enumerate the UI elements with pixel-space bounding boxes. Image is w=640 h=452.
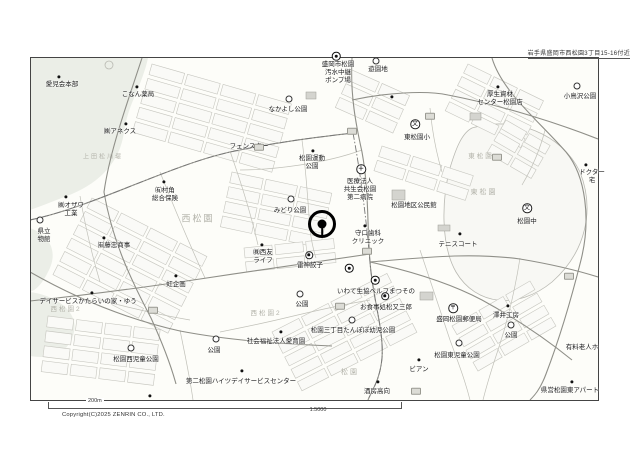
road-marker-pill (362, 248, 372, 255)
poi-marker-icon (57, 75, 60, 78)
poi-marker-icon (64, 195, 67, 198)
poi-marker-icon (240, 369, 243, 372)
poi-marker-icon (574, 83, 581, 90)
poi-marker-icon (332, 52, 341, 61)
scale-bar-label: 200m (86, 398, 104, 404)
poi-label: 県営松園東アパート (541, 387, 599, 395)
area-name-label: 上田松川堤 (83, 154, 123, 161)
poi-marker-icon (260, 243, 263, 246)
address-note: 岩手県盛岡市西松園3丁目15-16付近 (528, 48, 630, 59)
map-symbol-dot (148, 394, 151, 397)
poi-label: みどり公園 (274, 207, 307, 215)
scale-ratio: 1:5000 (310, 407, 327, 413)
poi-marker-icon (570, 380, 573, 383)
poi-marker-icon (381, 292, 389, 300)
poi-marker-icon (124, 122, 127, 125)
poi-marker-icon (305, 251, 313, 259)
poi-label: 第二松園ハイツデイサービスセンター (186, 378, 296, 386)
area-name-label: 松園 (341, 369, 359, 377)
poi-marker-icon (373, 58, 380, 65)
poi-marker-icon: 文 (410, 119, 420, 129)
poi-label: 松園中 (517, 218, 537, 226)
road-marker-pill (492, 154, 502, 161)
poi-label: いわて生協ベルフまつその (337, 288, 415, 296)
poi-label: 酒房高向 (364, 388, 390, 396)
poi-marker-icon (456, 340, 463, 347)
poi-label: 松園地区公民館 (391, 202, 437, 210)
poi-label: 松園三丁目たんぽぽ幼児公園 (311, 327, 396, 335)
poi-label: テニスコート (439, 241, 478, 249)
copyright-text: Copyright(C)2025 ZENRIN CO., LTD. (62, 412, 165, 418)
area-name-label: 東松園 (471, 189, 498, 197)
poi-label: ㈲藤忠商事 (98, 242, 131, 250)
poi-marker-icon: 〒 (448, 303, 458, 313)
poi-label: こなん薬局 (122, 91, 155, 99)
poi-label: 松園東児童公園 (434, 352, 480, 360)
area-name-label: 東松園 (468, 153, 494, 161)
pin-dot (318, 220, 327, 229)
road-marker-pill (564, 273, 574, 280)
poi-marker-icon (458, 232, 461, 235)
poi-label: 有料老人ホ (566, 344, 599, 352)
poi-label: 医療法人 共生会松園 第二病院 (344, 178, 377, 201)
road-marker-pill (254, 144, 264, 151)
poi-marker-icon (371, 276, 380, 285)
road-marker-pill (148, 307, 158, 314)
poi-marker-icon (349, 317, 356, 324)
poi-label: ㈲村角 総合保険 (152, 187, 178, 203)
poi-marker-icon (311, 149, 314, 152)
poi-label: 厚生資材 センター松園店 (477, 91, 523, 107)
poi-label: 松園西児童公園 (113, 356, 159, 364)
poi-marker-icon (363, 224, 366, 227)
poi-label: 公園 (505, 332, 518, 340)
poi-label: 盛岡松園郵便局 (436, 316, 482, 324)
poi-marker-icon (128, 345, 135, 352)
poi-label: 公園 (208, 347, 221, 355)
road-marker-pill (347, 128, 357, 135)
poi-label: 社会福祉法人愛育園 (247, 338, 306, 346)
poi-marker-icon (135, 85, 138, 88)
poi-marker-icon (506, 304, 509, 307)
poi-marker-icon (90, 291, 93, 294)
poi-marker-icon: 文 (522, 203, 532, 213)
location-pin (308, 210, 336, 238)
poi-marker-icon (297, 291, 304, 298)
zenrin-map-page: 岩手県盛岡市西松園3丁目15-16付近 200m 1:5000 Copyrigh… (0, 0, 640, 452)
poi-marker-icon (496, 85, 499, 88)
poi-label: 東松園小 (404, 134, 430, 142)
map-overlay: 岩手県盛岡市西松園3丁目15-16付近 200m 1:5000 Copyrigh… (0, 0, 640, 452)
poi-marker-icon (286, 96, 293, 103)
poi-label: ビアン (409, 366, 428, 374)
poi-marker-icon (279, 330, 282, 333)
poi-marker-icon (174, 274, 177, 277)
poi-label: 虹企画 (166, 281, 186, 289)
area-name-label: 西松園2 (50, 306, 81, 314)
poi-label: 守口歯科 クリニック (352, 230, 385, 246)
poi-label: ㈱アネクス (104, 128, 136, 136)
poi-marker-icon (213, 336, 220, 343)
poi-label: 澤井工房 (493, 312, 519, 320)
poi-label: 雷神餃子 (297, 262, 323, 270)
road-marker-pill (411, 388, 421, 395)
poi-label: デイサービスかたらいの家・ゆう (39, 298, 137, 306)
poi-marker-icon (102, 236, 105, 239)
area-name-label: 西松園2 (250, 310, 281, 318)
map-symbol-dot (390, 95, 393, 98)
poi-label: 小鳥沢公園 (564, 93, 597, 101)
poi-label: 愛児会本部 (46, 81, 79, 89)
poi-marker-icon (162, 180, 165, 183)
map-symbol-target (345, 264, 354, 273)
poi-label: 遊園地 (368, 66, 388, 74)
poi-marker-icon (376, 380, 379, 383)
poi-marker-icon: ＋ (356, 164, 366, 174)
poi-label: ドクター 宅 (579, 169, 605, 185)
poi-label: 盛岡市松園 汚水中継 ポンプ場 (322, 61, 355, 84)
road-marker-pill (335, 303, 345, 310)
poi-marker-icon (417, 358, 420, 361)
road-marker-pill (425, 113, 435, 120)
area-name-label: 西松園 (181, 214, 214, 225)
poi-label: 県立 物館 (38, 228, 51, 244)
poi-label: 松園運動 公園 (299, 155, 325, 171)
poi-marker-icon (584, 163, 587, 166)
poi-label: お食事処松又三郎 (360, 304, 412, 312)
poi-label: ㈱西友 ライフ (253, 249, 273, 265)
poi-label: ㈱オザワ 工業 (58, 202, 84, 218)
poi-label: なかよし公園 (269, 106, 308, 114)
poi-marker-icon (37, 217, 44, 224)
poi-marker-icon (288, 196, 295, 203)
poi-marker-icon (508, 322, 515, 329)
poi-label: 公園 (296, 301, 309, 309)
